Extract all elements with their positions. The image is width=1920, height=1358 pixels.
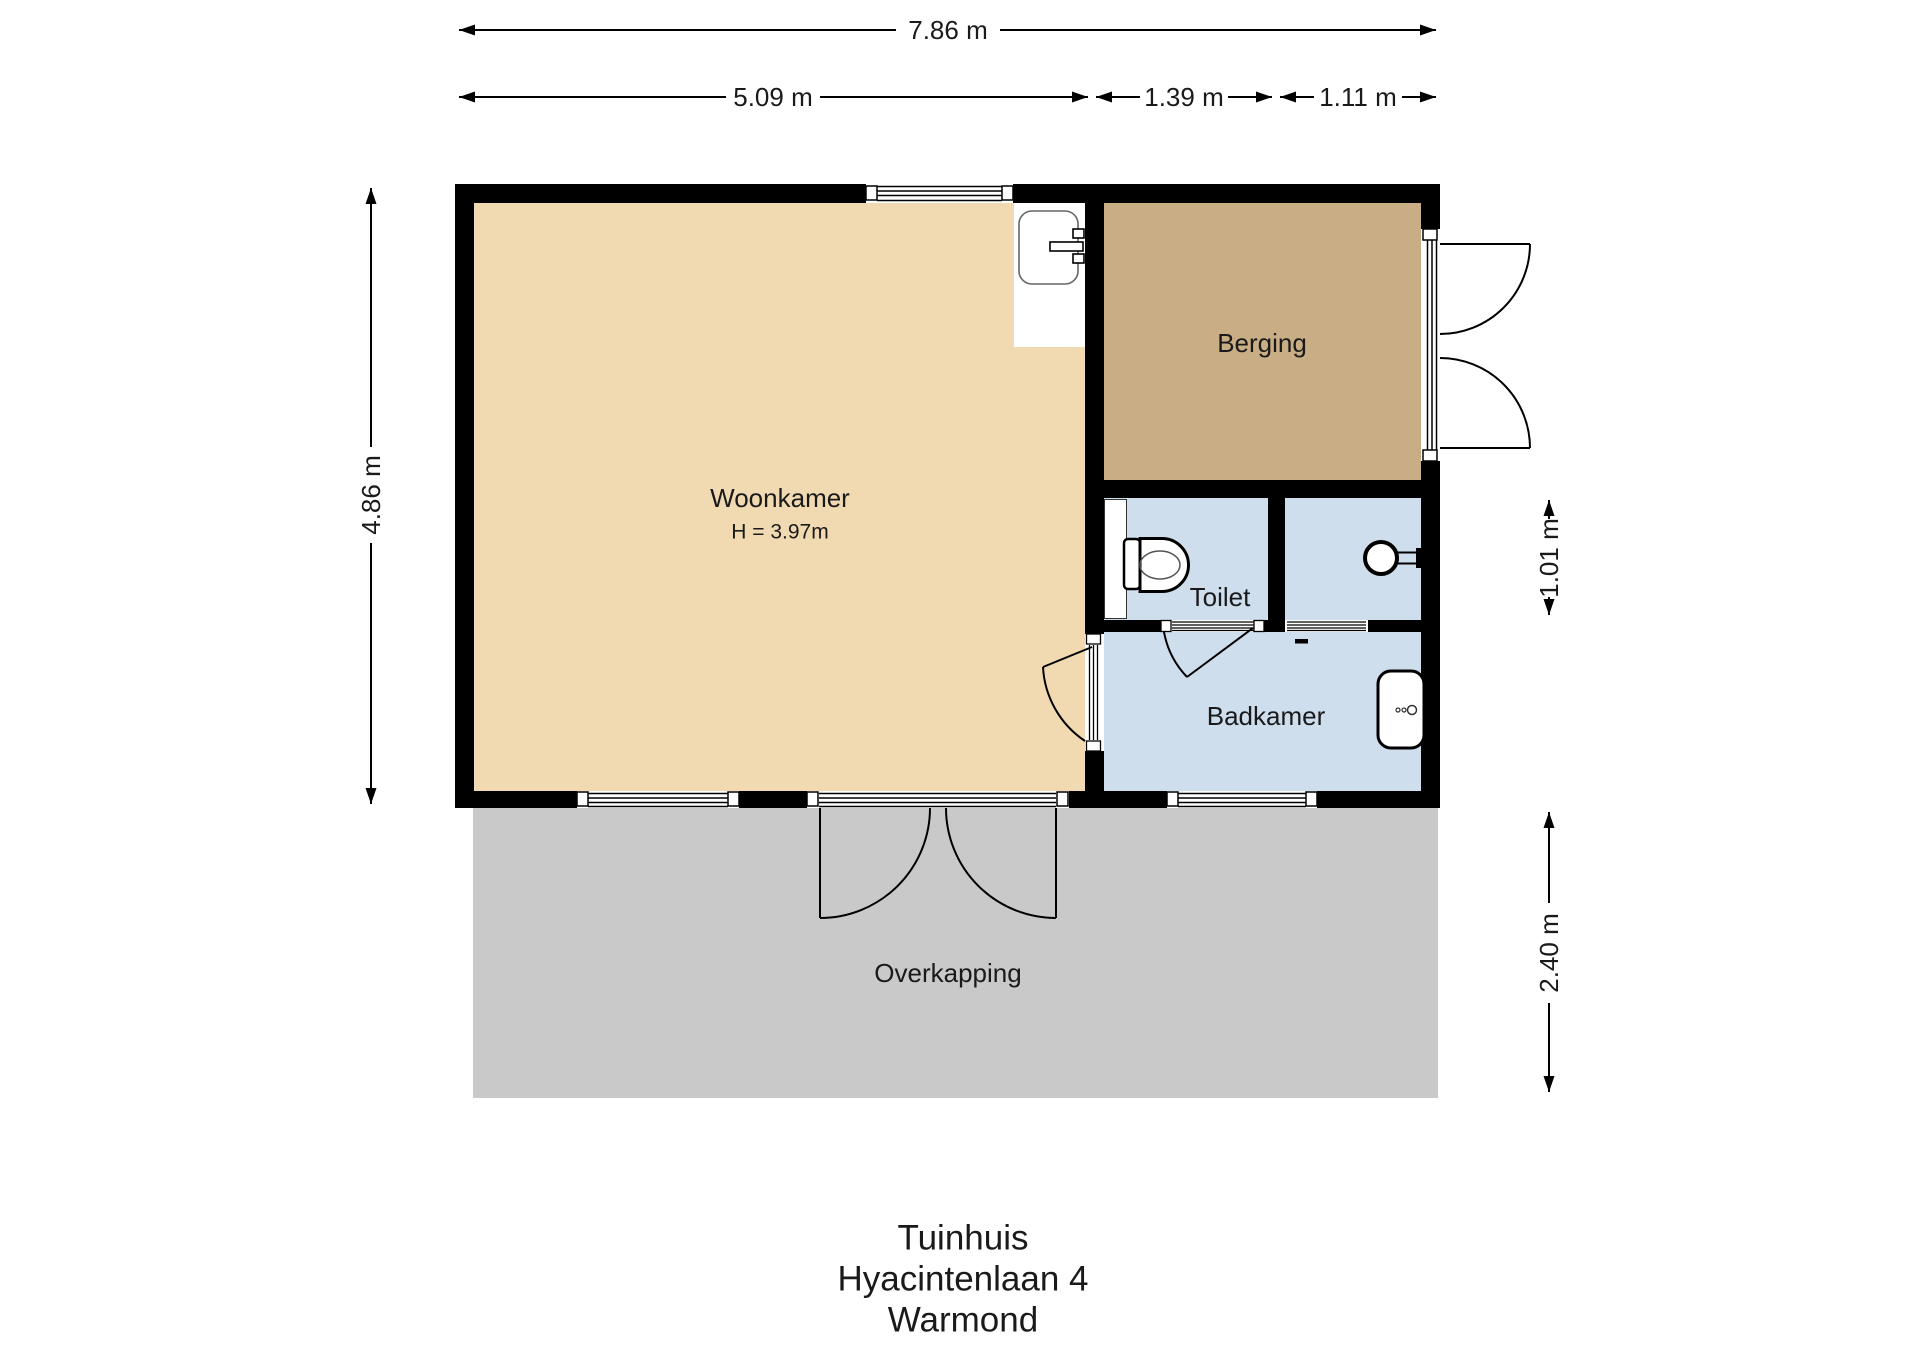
overkapping-depth-label: 2.40 m [1534, 913, 1564, 993]
window-top [866, 184, 1013, 203]
wall-toilet-shower-divider [1268, 498, 1285, 620]
overkapping-label: Overkapping [874, 958, 1021, 988]
room-shower [1285, 498, 1421, 620]
window-bottom-left [577, 791, 739, 808]
floor-plan-page: 7.86 m 5.09 m 1.39 m 1.11 m 4.86 m 1.01 … [0, 0, 1920, 1358]
toilet-row-height-label: 1.01 m [1534, 518, 1564, 598]
title-line-1: Tuinhuis [898, 1219, 1029, 1258]
total-width-label: 7.86 m [908, 15, 988, 45]
dash-marker [1295, 639, 1308, 644]
shower-tray-icon [1378, 671, 1424, 748]
double-door-berging [1421, 229, 1530, 461]
plan-title: Tuinhuis Hyacintenlaan 4 Warmond [838, 1219, 1089, 1340]
wall-berging-bottom [1085, 480, 1440, 498]
shower-width-label: 1.11 m [1319, 82, 1397, 112]
toilet-width-label: 1.39 m [1144, 82, 1224, 112]
sink-icon [1019, 211, 1084, 284]
woonkamer-width-label: 5.09 m [733, 82, 813, 112]
berging-label: Berging [1217, 328, 1307, 358]
woonkamer-label: Woonkamer [710, 483, 850, 513]
total-height-label: 4.86 m [356, 455, 386, 535]
badkamer-label: Badkamer [1207, 701, 1326, 731]
toilet-label: Toilet [1190, 582, 1251, 612]
title-line-3: Warmond [888, 1301, 1038, 1340]
window-bottom-right [1167, 791, 1317, 808]
woonkamer-height-note: H = 3.97m [731, 521, 828, 544]
title-line-2: Hyacintenlaan 4 [838, 1260, 1089, 1299]
floor-plan: 7.86 m 5.09 m 1.39 m 1.11 m 4.86 m 1.01 … [0, 0, 1920, 1358]
